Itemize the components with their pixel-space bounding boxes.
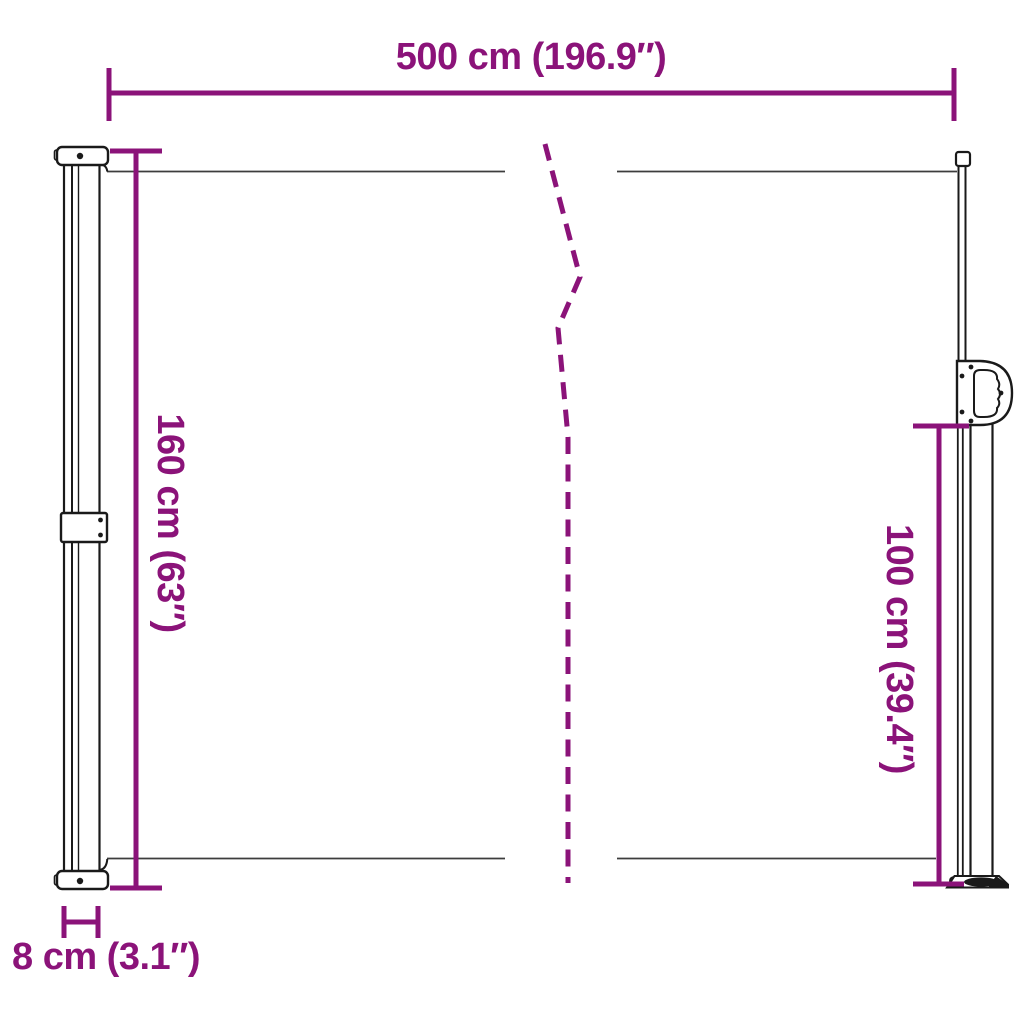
support-pole-right xyxy=(947,152,1012,888)
screw-dot xyxy=(77,153,83,159)
awning-fabric-edges xyxy=(107,172,957,859)
dimension-lines xyxy=(62,68,970,938)
depth-dimension-line xyxy=(62,906,101,938)
screw-dot xyxy=(98,533,103,538)
width-dimension-label: 500 cm (196.9″) xyxy=(131,37,931,77)
left-height-dimension-label: 160 cm (63″) xyxy=(150,403,190,643)
screw-dot xyxy=(77,878,83,884)
pole-top-cap xyxy=(956,152,970,166)
right-height-dimension-line xyxy=(913,424,969,887)
screw-dot xyxy=(960,410,965,415)
screw-dot xyxy=(969,419,974,424)
cassette-pole-left xyxy=(55,147,109,889)
fabric-break-line xyxy=(545,144,580,883)
screw-dot xyxy=(999,391,1004,396)
handle-grip-cutout xyxy=(974,370,1000,417)
screw-dot xyxy=(960,374,965,379)
depth-dimension-label: 8 cm (3.1″) xyxy=(12,937,200,977)
cassette-clamp xyxy=(61,513,107,542)
awning-dimension-diagram: 500 cm (196.9″) 160 cm (63″) 100 cm (39.… xyxy=(0,0,1024,1024)
right-height-dimension-label: 100 cm (39.4″) xyxy=(879,519,919,779)
screw-dot xyxy=(969,365,974,370)
screw-dot xyxy=(98,518,103,523)
